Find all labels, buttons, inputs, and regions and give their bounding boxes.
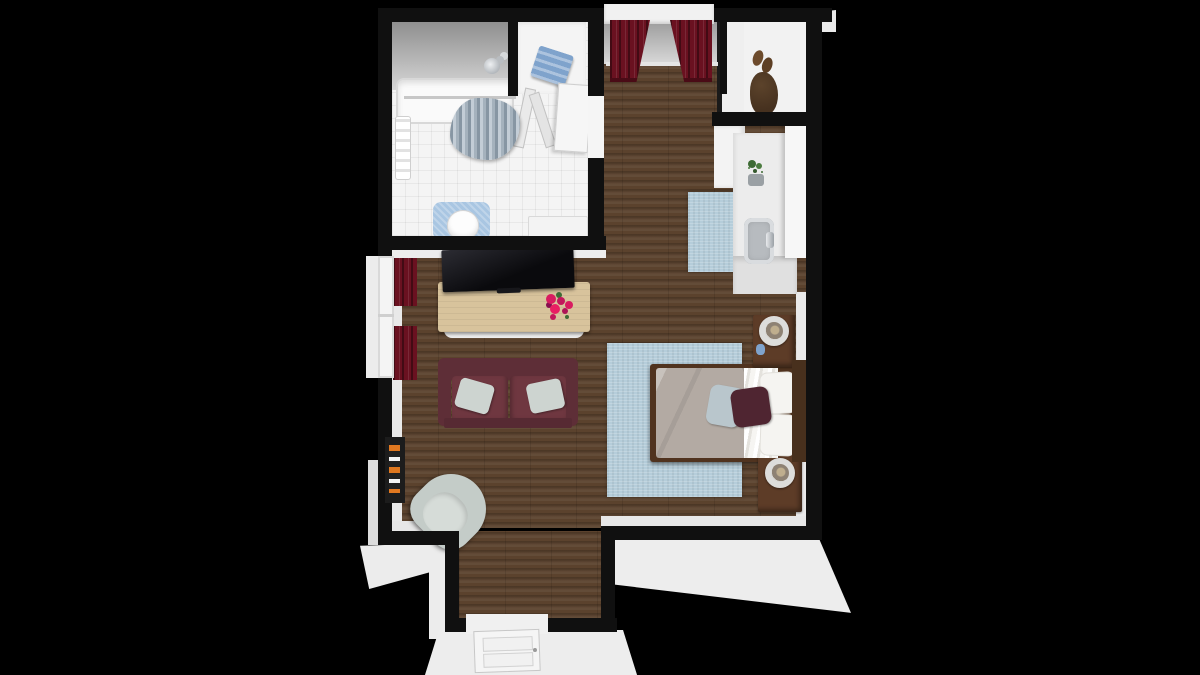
table-lamp-foot <box>765 458 795 488</box>
entry-door <box>473 629 540 673</box>
bathroom-door <box>554 83 593 153</box>
wall-linen-closet-left <box>508 12 518 96</box>
artwork-canvas <box>389 445 400 493</box>
bathroom-door-opening <box>588 96 604 158</box>
nightstand-cup <box>756 344 765 355</box>
exterior-apron-bottom-right <box>603 538 851 616</box>
kitchen-sink <box>744 218 774 264</box>
wall-bathroom-bottom <box>378 236 606 250</box>
flower-bouquet-icon <box>546 294 556 304</box>
wall-right <box>806 8 822 540</box>
upper-cabinet <box>785 120 807 258</box>
bathroom-vanity <box>528 216 588 238</box>
wall-bottom-right <box>601 526 822 540</box>
shower-rod <box>404 96 516 99</box>
accent-pillow-maroon <box>730 386 773 429</box>
tv <box>441 246 574 293</box>
kitchen-rug <box>688 192 738 272</box>
plant-icon <box>748 160 756 168</box>
wall-bottom-left <box>378 531 454 545</box>
coat <box>750 72 778 116</box>
entry-door-knob-icon <box>533 648 537 652</box>
entry-door-panel-bottom <box>483 652 533 668</box>
wall-alcove-right <box>601 531 615 632</box>
plant-pot <box>748 174 764 186</box>
entry-door-panel-top <box>483 636 533 652</box>
wall-artwork <box>385 437 405 503</box>
faucet-icon <box>766 232 774 248</box>
wall-closet-bottom <box>712 112 822 126</box>
left-wall-window <box>378 256 394 378</box>
left-curtain-lower <box>393 326 417 380</box>
sofa-arm-right <box>565 358 578 426</box>
shower-head-icon <box>484 58 500 74</box>
tv-stand <box>497 288 521 294</box>
headboard <box>792 360 806 462</box>
towel-rack <box>395 116 411 180</box>
wall-alcove-left <box>445 531 459 632</box>
wood-floor-entry <box>459 531 601 619</box>
sofa-front-edge <box>444 418 572 428</box>
left-curtain-upper <box>393 258 417 306</box>
floorplan-stage <box>0 0 1200 675</box>
sofa-arm-left <box>438 358 451 426</box>
window-mullion <box>378 314 394 317</box>
table-lamp-head <box>759 316 789 346</box>
wall-closet-left <box>720 12 727 94</box>
